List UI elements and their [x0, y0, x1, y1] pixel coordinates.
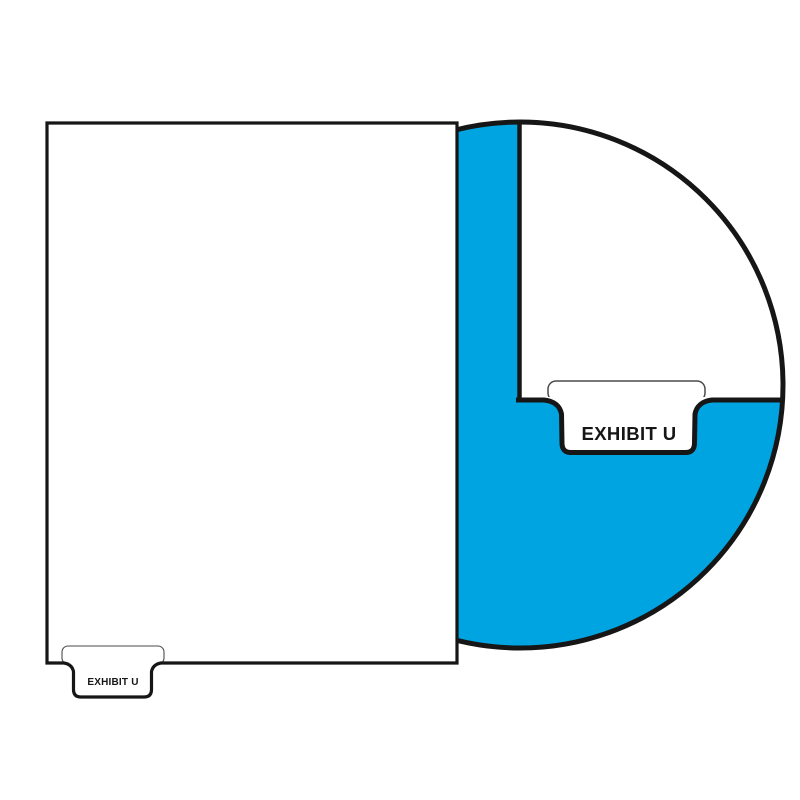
sheet — [47, 123, 457, 697]
magnified-page — [519, 108, 800, 400]
magnified-tab-label: EXHIBIT U — [581, 423, 676, 444]
exhibit-tab-illustration: EXHIBIT U EXHIBIT U — [0, 0, 800, 800]
product-image-canvas: EXHIBIT U EXHIBIT U — [0, 0, 800, 800]
sheet-tab-label: EXHIBIT U — [87, 677, 138, 688]
